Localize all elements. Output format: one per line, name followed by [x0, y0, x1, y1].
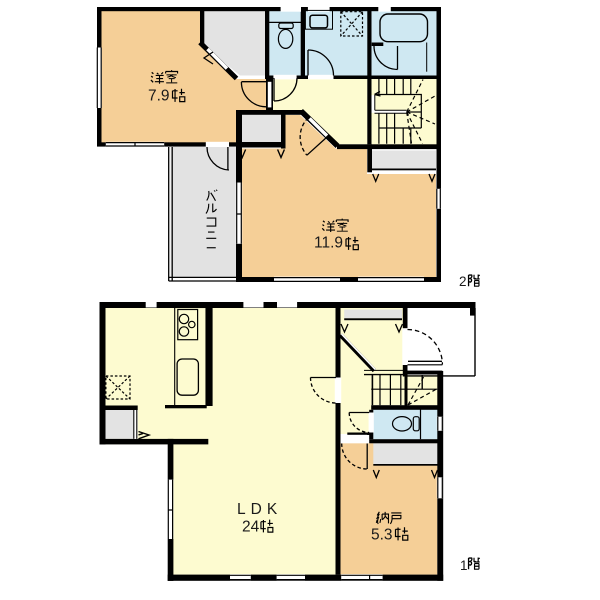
svg-text:LDK: LDK	[237, 501, 282, 518]
svg-text:24: 24	[242, 519, 260, 536]
svg-text:11.9: 11.9	[314, 235, 343, 252]
svg-text:7.9: 7.9	[148, 88, 170, 105]
svg-text:5.3: 5.3	[371, 527, 393, 544]
svg-text:1: 1	[460, 558, 468, 573]
svg-text:2: 2	[459, 274, 467, 289]
